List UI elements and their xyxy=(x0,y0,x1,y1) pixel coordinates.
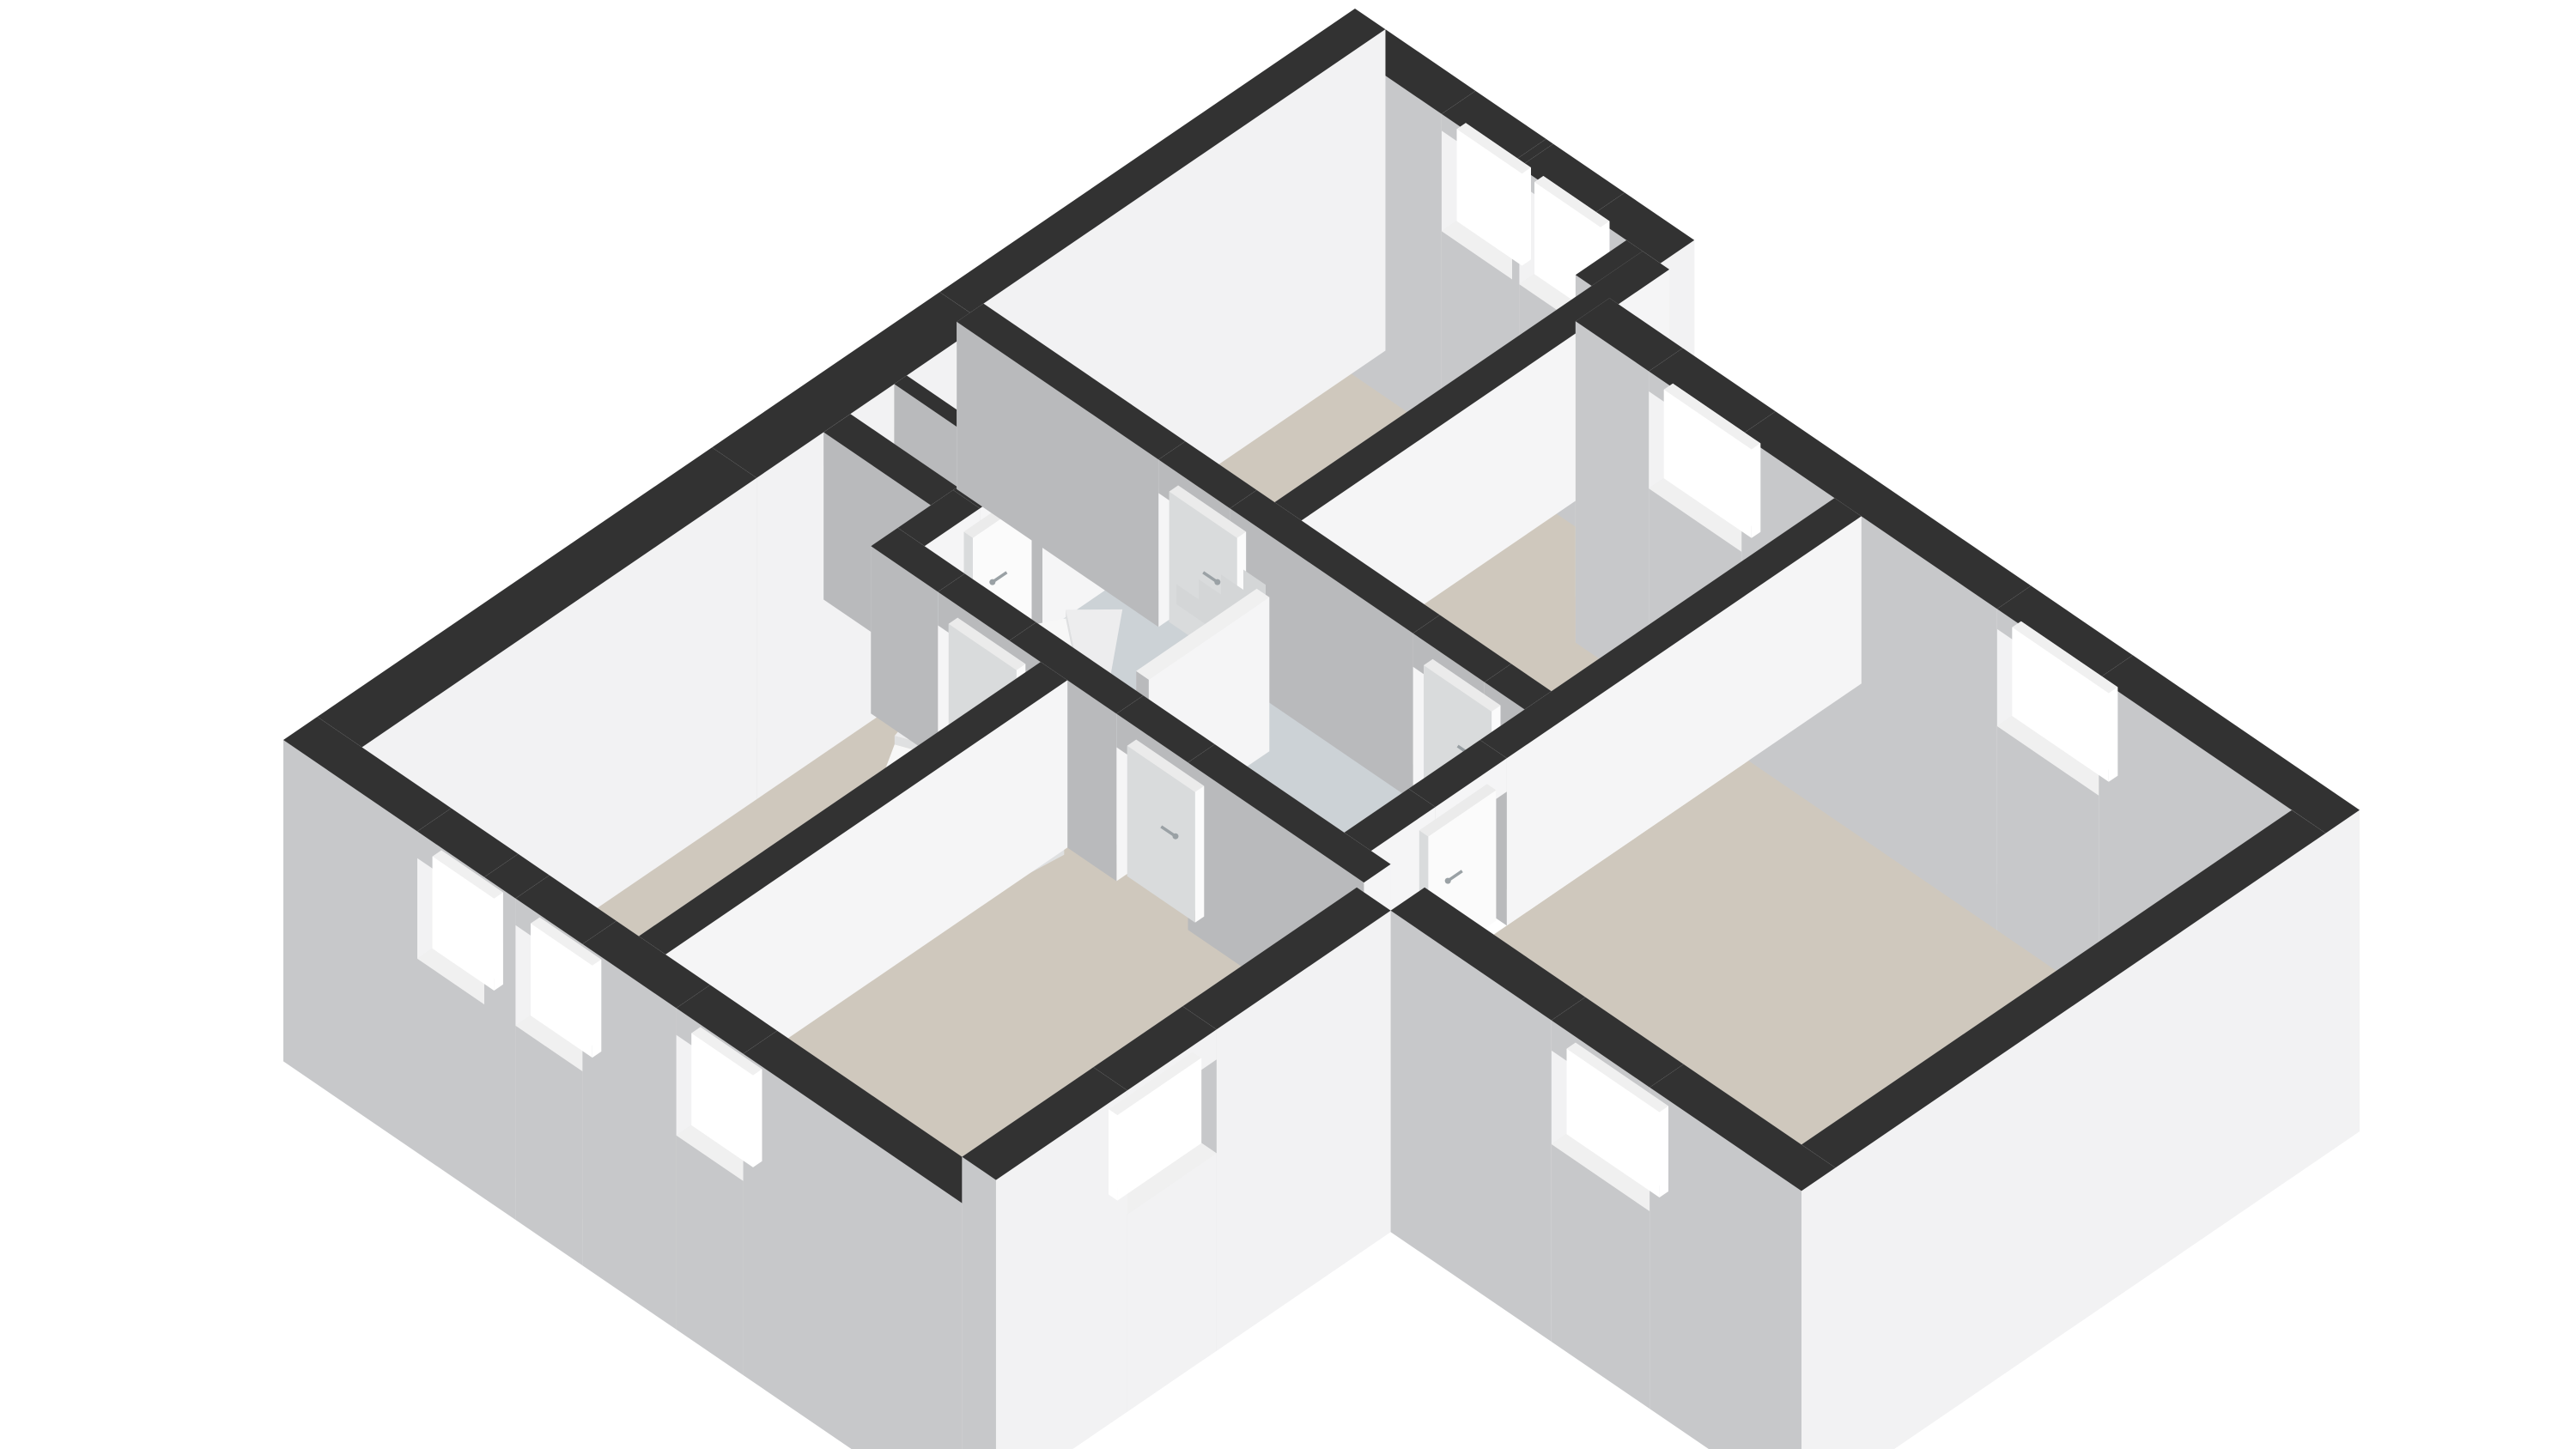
window xyxy=(753,1070,762,1167)
wall-ext-notch xyxy=(962,1157,996,1449)
door-handle-icon xyxy=(989,579,995,585)
floorplan-3d-view[interactable] xyxy=(0,0,2576,1449)
door-handle-icon xyxy=(1445,878,1451,884)
wall-ext-ne-long xyxy=(2326,810,2360,1155)
window xyxy=(2109,687,2117,781)
window xyxy=(494,893,502,991)
window xyxy=(1660,1106,1668,1198)
window xyxy=(1522,167,1531,265)
wall-ext-se-rightwing xyxy=(1801,1167,1836,1449)
window xyxy=(592,960,601,1058)
door-handle-icon xyxy=(1173,834,1179,840)
door-handle-icon xyxy=(1214,579,1220,585)
door-leaf xyxy=(1195,786,1204,923)
floorplan-3d-render xyxy=(0,0,2576,1449)
window xyxy=(1109,1109,1117,1201)
window xyxy=(1752,443,1760,537)
